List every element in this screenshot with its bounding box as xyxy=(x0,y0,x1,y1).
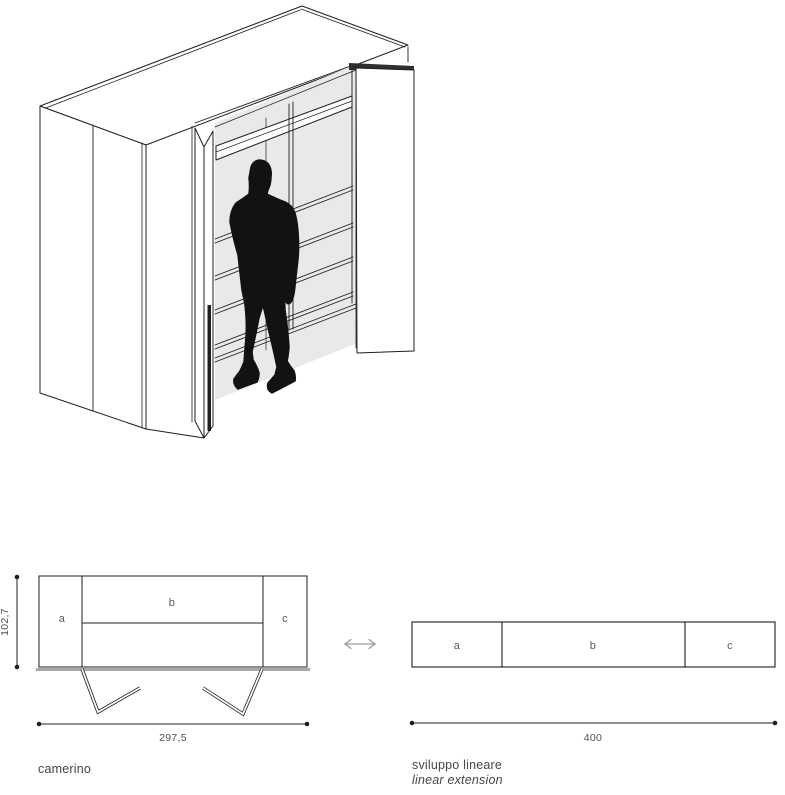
plan-depth-dimension: 102,7 xyxy=(0,575,19,670)
plan-view-diagram: 102,7 297,5 a b c camerino xyxy=(0,575,310,776)
doorway-base-edge xyxy=(146,429,204,438)
plan-section-c-label: c xyxy=(282,613,288,625)
isometric-wardrobe-illustration xyxy=(40,6,414,438)
linear-caption-secondary: linear extension xyxy=(412,773,503,787)
linear-caption-primary: sviluppo lineare xyxy=(412,758,502,772)
plan-width-dimension-label: 297,5 xyxy=(159,732,187,744)
linear-width-dimension-label: 400 xyxy=(584,732,602,744)
relation-double-arrow-icon xyxy=(345,640,375,649)
plan-caption: camerino xyxy=(38,762,91,776)
linear-section-a-label: a xyxy=(454,640,461,652)
plan-width-dimension: 297,5 xyxy=(37,722,310,744)
catalog-technical-page: 102,7 297,5 a b c camerino xyxy=(0,0,785,795)
linear-width-dimension: 400 xyxy=(410,721,778,744)
technical-drawing-canvas: 102,7 297,5 a b c camerino xyxy=(0,0,785,795)
linear-section-b-label: b xyxy=(590,640,596,652)
plan-section-b-label: b xyxy=(169,597,175,609)
bifold-door-open xyxy=(192,126,213,438)
linear-view-diagram: 400 a b c sviluppo lineare linear extens… xyxy=(410,622,778,787)
plan-section-a-label: a xyxy=(59,613,66,625)
plan-outline xyxy=(39,576,307,667)
plan-depth-dimension-label: 102,7 xyxy=(0,608,11,636)
bifold-door-edge-shadow xyxy=(208,305,212,431)
closed-doors-front-face xyxy=(40,106,146,429)
plan-open-doors xyxy=(82,669,262,714)
right-door-open xyxy=(349,47,414,353)
linear-section-c-label: c xyxy=(727,640,733,652)
